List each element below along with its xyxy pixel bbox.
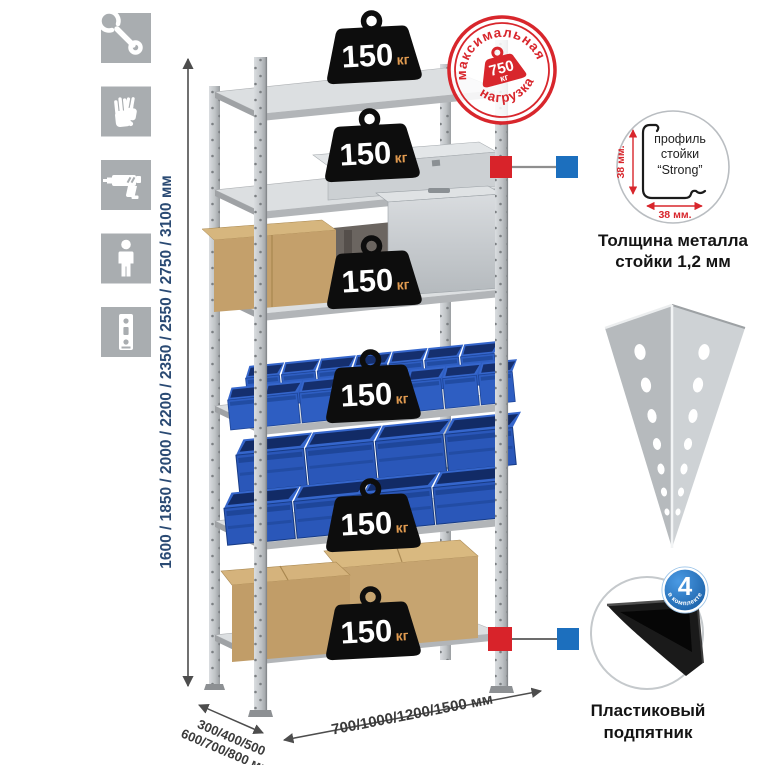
svg-text:700/1000/1200/1500 мм: 700/1000/1200/1500 мм [330,691,494,739]
profile-caption-line2: стойки 1,2 мм [615,252,731,271]
svg-text:150: 150 [341,37,394,75]
feature-icons-column [99,11,151,357]
max-load-stamp: максимальная нагрузка 750 кг [437,5,567,135]
width-dimension: 700/1000/1200/1500 мм [284,691,541,740]
load-badge-2: 150 кг [322,109,420,183]
svg-text:150: 150 [340,613,393,651]
svg-text:кг: кг [394,149,408,166]
drill-icon [101,160,151,210]
angle-post-image [605,305,745,548]
included-count-badge: 4 в комплекте [662,567,708,613]
load-badge-1: 150 кг [324,11,422,85]
svg-text:стойки: стойки [661,147,699,161]
diagram-canvas: 1600 / 1850 / 2000 / 2200 / 2350 / 2550 … [0,0,765,765]
svg-text:38 мм.: 38 мм. [615,145,627,178]
height-dimension: 1600 / 1850 / 2000 / 2200 / 2350 / 2550 … [158,59,188,686]
product-infographic: 1600 / 1850 / 2000 / 2200 / 2350 / 2550 … [0,0,765,765]
post-strip-icon [101,307,151,357]
red-marker-bottom [488,627,512,651]
svg-text:профиль: профиль [654,132,706,146]
plastic-foot-detail: 4 в комплекте [591,567,708,689]
wrench-icon [99,11,151,63]
height-dimension-label: 1600 / 1850 / 2000 / 2200 / 2350 / 2550 … [158,175,175,569]
svg-text:38 мм.: 38 мм. [658,209,691,221]
profile-callout-connector [490,156,578,178]
svg-text:кг: кг [396,51,410,68]
foot-caption-line1: Пластиковый [591,701,706,720]
svg-text:“Strong”: “Strong” [657,163,702,177]
profile-caption-line1: Толщина металла [598,231,748,250]
svg-text:150: 150 [341,262,394,300]
blue-marker-top [556,156,578,178]
svg-text:150: 150 [339,135,392,173]
svg-text:кг: кг [395,390,409,407]
svg-text:150: 150 [340,505,393,543]
svg-text:кг: кг [396,276,410,293]
person-icon [101,234,151,284]
svg-text:кг: кг [395,519,409,536]
blue-marker-bottom [557,628,579,650]
svg-text:4: 4 [678,571,693,601]
foot-caption-line2: подпятник [604,723,693,742]
gloves-icon [101,87,151,137]
svg-text:кг: кг [395,627,409,644]
red-marker-top [490,156,512,178]
post-profile-detail: 38 мм. 38 мм. профиль стойки “Strong” [615,111,729,223]
svg-text:150: 150 [340,376,393,414]
foot-callout-connector [488,627,579,651]
